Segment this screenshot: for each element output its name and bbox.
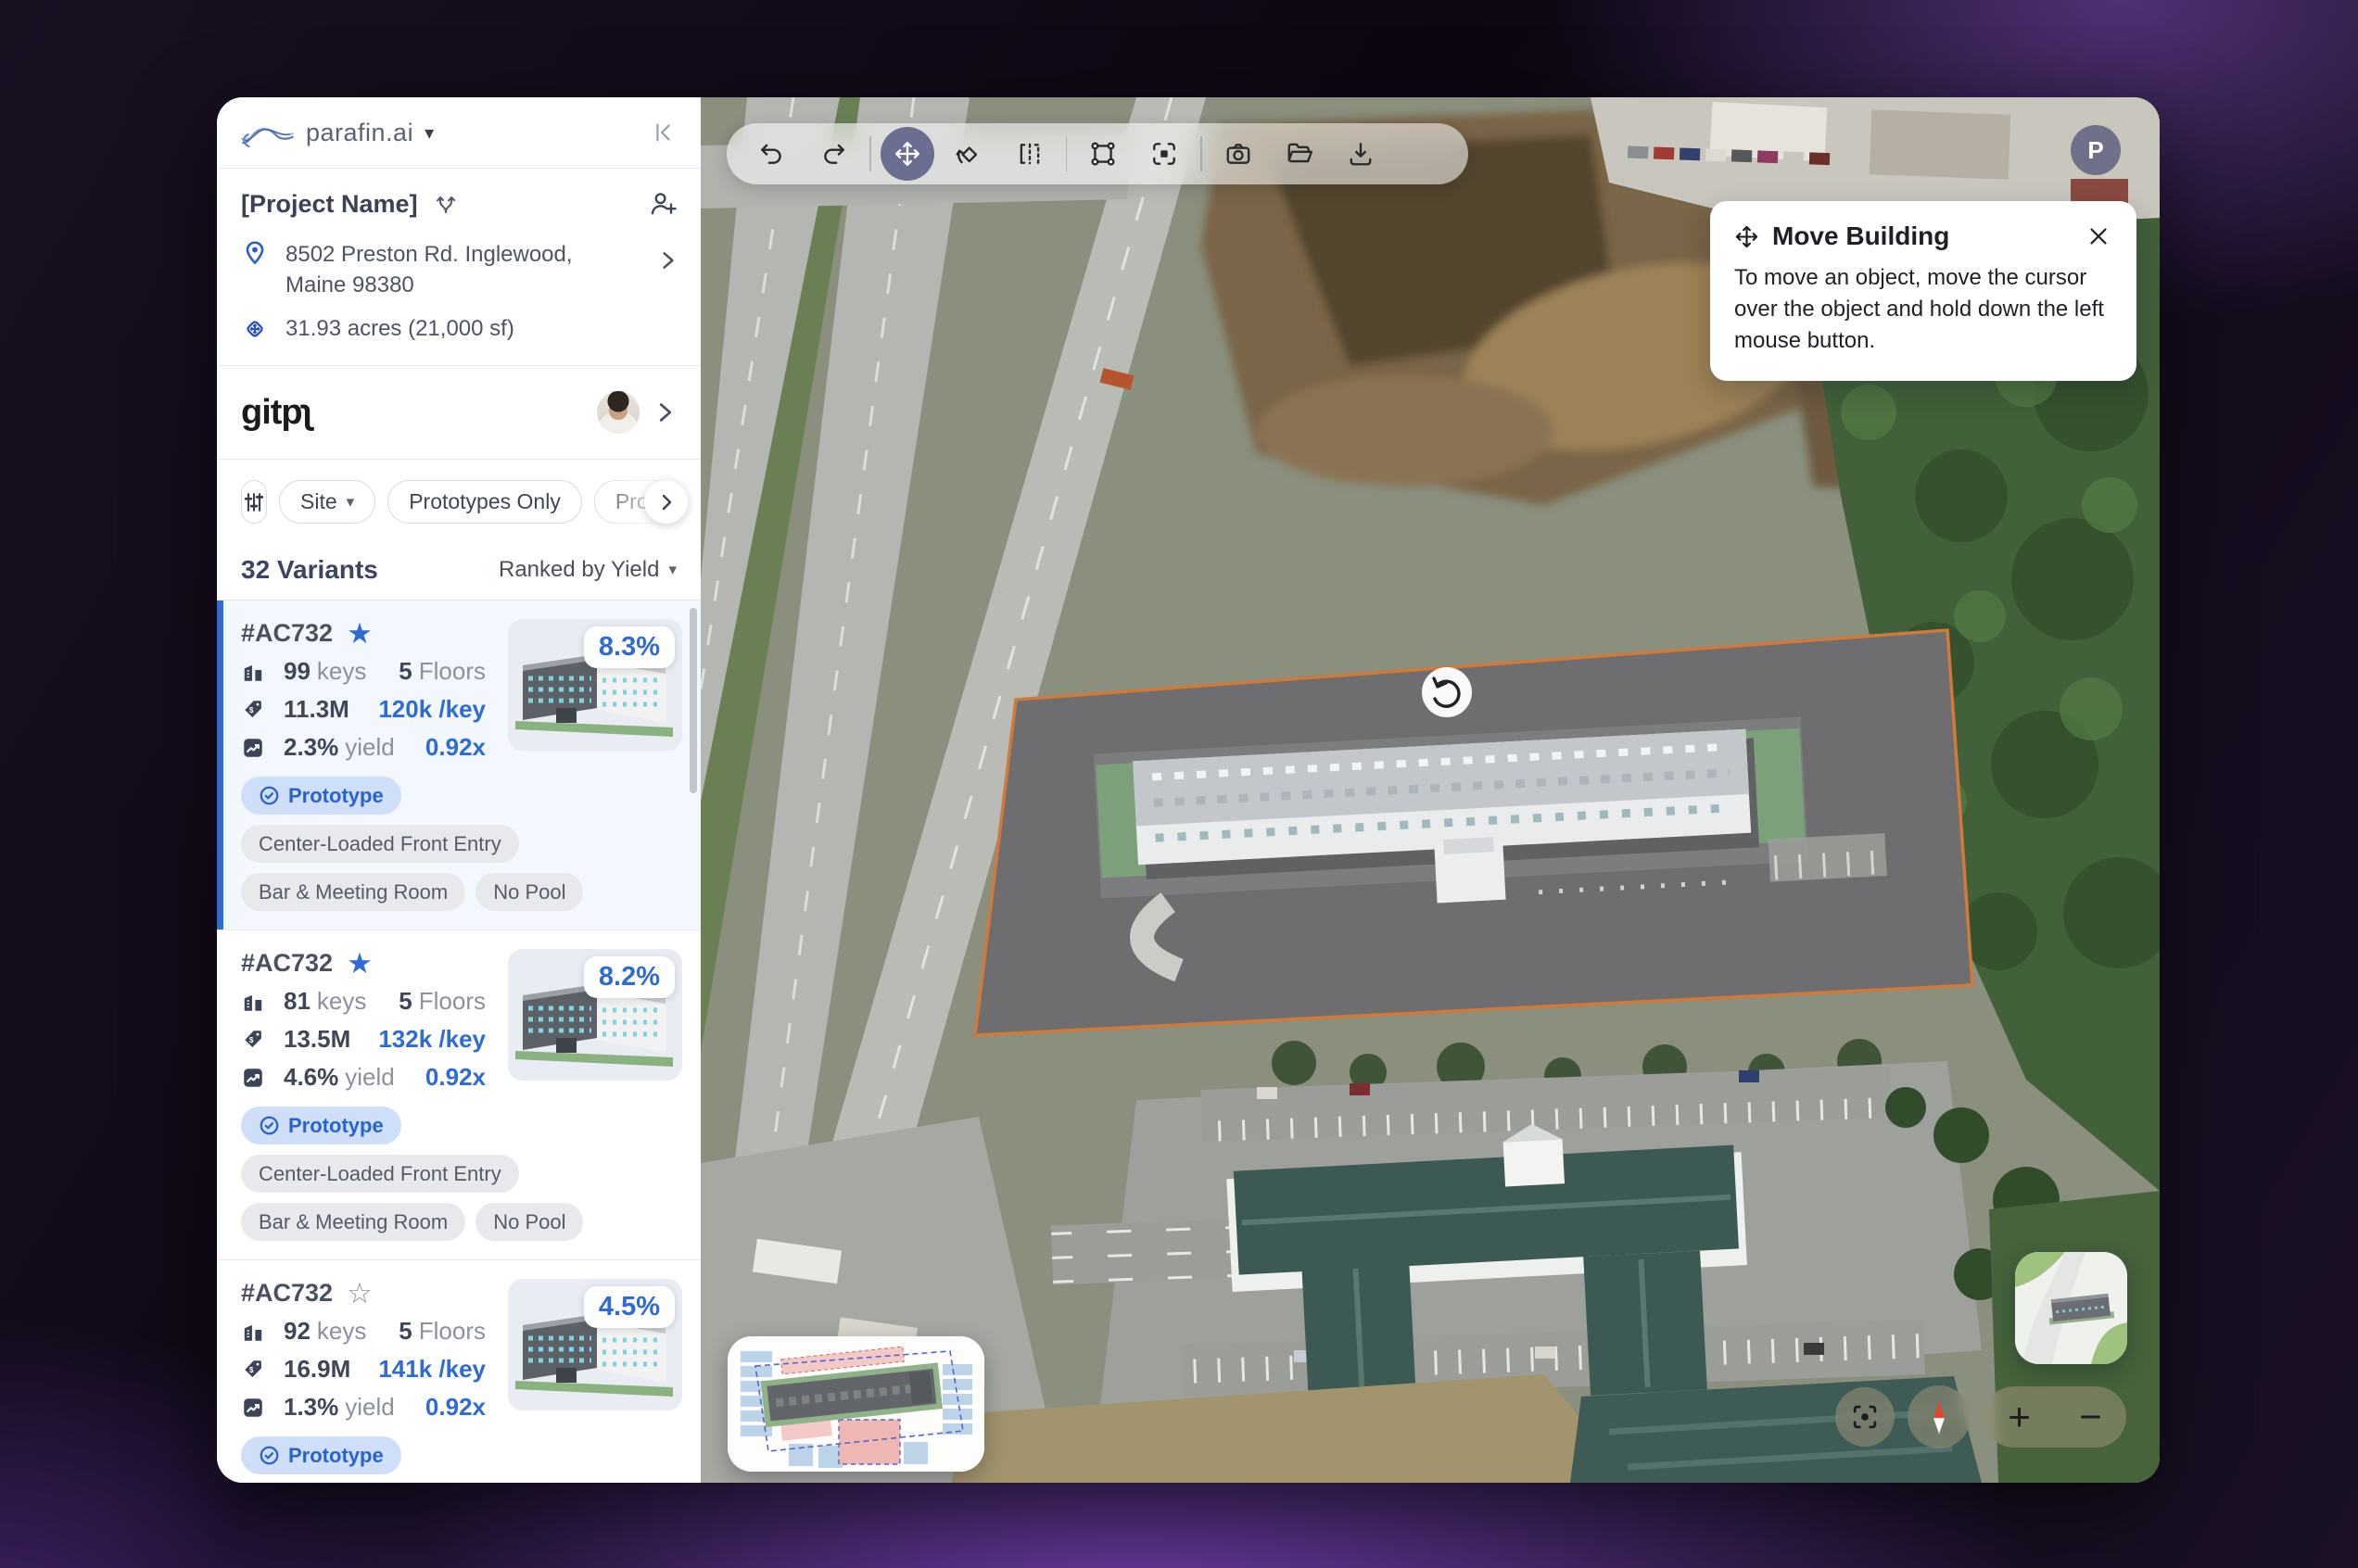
variant-tag: No Pool xyxy=(475,873,583,911)
yield-value: 1.3% xyxy=(284,1393,338,1421)
folder-icon xyxy=(1286,140,1313,168)
rotate-handle[interactable] xyxy=(1422,667,1472,717)
toolbar-divider xyxy=(869,136,871,171)
sidebar-collapse-button[interactable] xyxy=(647,117,678,148)
variant-thumbnail[interactable]: 8.2% xyxy=(508,949,682,1081)
toolbar-divider xyxy=(1066,136,1068,171)
yield-value: 2.3% xyxy=(284,733,338,761)
filter-scroll-right-button[interactable] xyxy=(644,480,688,524)
move-icon xyxy=(894,140,921,168)
price-tag-icon: $ xyxy=(241,1028,265,1052)
location-pin-icon xyxy=(241,239,269,267)
prototype-tag: Prototype xyxy=(241,1106,401,1144)
keys-icon xyxy=(241,660,265,684)
yield-unit: yield xyxy=(345,1063,394,1091)
price-tag-icon: $ xyxy=(241,1358,265,1382)
sidebar-scrollbar[interactable] xyxy=(690,608,697,793)
floors-value: 5 xyxy=(399,1317,412,1345)
tooltip-body: To move an object, move the cursor over … xyxy=(1734,262,2112,357)
partner-logo: gitpʅ xyxy=(241,393,312,433)
multiple-value: 0.92x xyxy=(425,1393,502,1422)
view-preview-widget[interactable] xyxy=(2015,1252,2127,1364)
partner-avatar xyxy=(597,391,640,434)
variant-tag: Bar & Meeting Room xyxy=(241,873,465,911)
variant-card[interactable]: #AC732 ☆ 92keys 5Floors xyxy=(217,1260,701,1483)
transform-tool-button[interactable] xyxy=(1072,123,1134,184)
brand-header: parafin.ai ▾ xyxy=(217,97,701,168)
project-address: 8502 Preston Rd. Inglewood, Maine 98380 xyxy=(285,239,591,300)
chevron-right-icon[interactable] xyxy=(658,250,678,271)
rotate-tool-button[interactable] xyxy=(938,123,999,184)
svg-text:$: $ xyxy=(249,706,254,714)
toolbar-divider xyxy=(1200,136,1202,171)
project-area: 31.93 acres (21,000 sf) xyxy=(285,316,514,342)
building-model[interactable] xyxy=(975,630,1972,1035)
variant-tags: PrototypeCenter-Loaded Front EntryBar & … xyxy=(241,1436,682,1483)
move-building-tooltip: Move Building To move an object, move th… xyxy=(1710,201,2136,381)
partner-section[interactable]: gitpʅ xyxy=(217,366,701,459)
variant-id: #AC732 xyxy=(241,619,333,648)
yield-icon xyxy=(241,736,265,760)
per-key-value: 141k /key xyxy=(378,1355,502,1384)
camera-icon xyxy=(1224,140,1252,168)
collapse-icon xyxy=(651,120,675,145)
project-section: [Project Name] 8502 Preston Rd. Inglewoo… xyxy=(217,169,701,365)
floors-unit: Floors xyxy=(419,987,486,1015)
add-collaborator-icon[interactable] xyxy=(649,189,678,219)
recenter-icon xyxy=(1850,1402,1880,1432)
brand-name: parafin.ai xyxy=(306,119,413,147)
map-viewport[interactable]: Move Building To move an object, move th… xyxy=(701,97,2160,1483)
keys-value: 81 xyxy=(284,987,311,1015)
favorite-star-icon[interactable]: ★ xyxy=(347,949,373,978)
area-row: 31.93 acres (21,000 sf) xyxy=(241,315,678,343)
yield-badge: 4.5% xyxy=(584,1286,675,1328)
floors-value: 5 xyxy=(399,987,412,1015)
variant-id: #AC732 xyxy=(241,949,333,978)
tooltip-close-button[interactable] xyxy=(2085,222,2112,250)
compass-needle-icon xyxy=(1919,1397,1959,1437)
project-name: [Project Name] xyxy=(241,190,418,219)
brand-dropdown-caret[interactable]: ▾ xyxy=(425,121,434,145)
yield-icon xyxy=(241,1066,265,1090)
per-key-value: 120k /key xyxy=(378,695,502,724)
variant-thumbnail[interactable]: 4.5% xyxy=(508,1279,682,1410)
keys-unit: keys xyxy=(317,657,366,685)
keys-icon xyxy=(241,990,265,1014)
sidebar: parafin.ai ▾ [Project Name] xyxy=(217,97,701,1483)
price-tag-icon: $ xyxy=(241,698,265,722)
verified-icon xyxy=(259,785,280,806)
mirror-icon xyxy=(1016,140,1044,168)
verified-icon xyxy=(259,1115,280,1136)
yield-badge: 8.2% xyxy=(584,956,675,998)
filter-site-dropdown[interactable]: Site ▾ xyxy=(279,480,375,524)
variant-card[interactable]: #AC732 ★ 99keys 5Floors xyxy=(217,601,701,930)
keys-icon xyxy=(241,1320,265,1344)
verified-icon xyxy=(259,1445,280,1466)
variant-tag: Center-Loaded Front Entry xyxy=(241,825,519,863)
screenshot-button[interactable] xyxy=(1208,123,1269,184)
focus-icon xyxy=(1150,140,1178,168)
prototype-tag: Prototype xyxy=(241,1436,401,1474)
focus-selection-button[interactable] xyxy=(1134,123,1195,184)
svg-text:$: $ xyxy=(249,1036,254,1044)
caret-down-icon: ▾ xyxy=(668,561,677,579)
view-preview xyxy=(2015,1252,2127,1364)
tooltip-title: Move Building xyxy=(1772,221,1949,251)
chevron-right-icon xyxy=(657,493,676,512)
favorite-star-icon[interactable]: ★ xyxy=(347,619,373,648)
variant-id: #AC732 xyxy=(241,1279,333,1308)
variant-tags: PrototypeCenter-Loaded Front EntryBar & … xyxy=(241,777,682,911)
parafin-logo-icon xyxy=(237,113,297,152)
sort-dropdown[interactable]: Ranked by Yield ▾ xyxy=(499,557,677,583)
yield-unit: yield xyxy=(345,1393,394,1421)
variant-thumbnail[interactable]: 8.3% xyxy=(508,619,682,751)
yield-value: 4.6% xyxy=(284,1063,338,1091)
open-files-button[interactable] xyxy=(1269,123,1330,184)
redo-button[interactable] xyxy=(803,123,864,184)
caret-down-icon: ▾ xyxy=(347,493,355,512)
compass[interactable] xyxy=(1908,1385,1971,1448)
per-key-value: 132k /key xyxy=(378,1025,502,1054)
variants-header: 32 Variants Ranked by Yield ▾ xyxy=(217,542,701,600)
filter-prototypes-button[interactable]: Prototypes Only xyxy=(387,480,582,524)
site-area-icon xyxy=(241,315,269,343)
sliders-icon xyxy=(242,490,266,514)
user-avatar[interactable]: P xyxy=(2071,125,2121,175)
variants-count: 32 Variants xyxy=(241,555,378,585)
yield-badge: 8.3% xyxy=(584,626,675,668)
variant-tag: No Pool xyxy=(475,1203,583,1241)
yield-unit: yield xyxy=(345,733,394,761)
move-icon xyxy=(1734,224,1759,249)
site-plan-minimap[interactable] xyxy=(728,1336,984,1472)
zoom-in-button[interactable]: + xyxy=(1984,1386,2055,1448)
move-tool-button[interactable] xyxy=(881,127,934,181)
mirror-tool-button[interactable] xyxy=(999,123,1060,184)
keys-unit: keys xyxy=(317,1317,366,1345)
svg-text:$: $ xyxy=(249,1366,254,1374)
variant-tag: Bar & Meeting Room xyxy=(241,1203,465,1241)
redo-icon xyxy=(819,140,847,168)
zoom-out-button[interactable]: − xyxy=(2055,1386,2126,1448)
price-value: 11.3M xyxy=(284,695,349,723)
filter-bar: Site ▾ Prototypes Only Progra xyxy=(217,460,701,542)
keys-value: 92 xyxy=(284,1317,311,1345)
branch-icon[interactable] xyxy=(433,191,459,217)
undo-button[interactable] xyxy=(742,123,803,184)
undo-icon xyxy=(758,140,786,168)
floors-unit: Floors xyxy=(419,1317,486,1345)
app-window: parafin.ai ▾ [Project Name] xyxy=(217,97,2160,1483)
filter-settings-button[interactable] xyxy=(241,480,267,524)
chevron-right-icon[interactable] xyxy=(654,401,677,424)
download-icon xyxy=(1347,140,1375,168)
download-button[interactable] xyxy=(1330,123,1391,184)
variant-card[interactable]: #AC732 ★ 81keys 5Floors xyxy=(217,930,701,1260)
keys-value: 99 xyxy=(284,657,311,685)
price-value: 16.9M xyxy=(284,1355,350,1383)
site-plan xyxy=(728,1336,984,1472)
multiple-value: 0.92x xyxy=(425,1063,502,1092)
variant-tag: Center-Loaded Front Entry xyxy=(241,1155,519,1193)
map-toolbar xyxy=(727,123,1468,184)
transform-icon xyxy=(1089,140,1117,168)
keys-unit: keys xyxy=(317,987,366,1015)
zoom-controls: + − xyxy=(1984,1386,2126,1448)
floors-unit: Floors xyxy=(419,657,486,685)
multiple-value: 0.92x xyxy=(425,733,502,762)
variant-list: #AC732 ★ 99keys 5Floors xyxy=(217,600,701,1483)
floors-value: 5 xyxy=(399,657,412,685)
favorite-star-icon[interactable]: ☆ xyxy=(347,1279,373,1308)
price-value: 13.5M xyxy=(284,1025,350,1053)
recenter-button[interactable] xyxy=(1835,1387,1895,1447)
address-row[interactable]: 8502 Preston Rd. Inglewood, Maine 98380 xyxy=(241,239,678,300)
prototype-tag: Prototype xyxy=(241,777,401,815)
close-icon xyxy=(2086,224,2111,248)
rotate-icon xyxy=(955,140,982,168)
sort-label: Ranked by Yield xyxy=(499,557,659,583)
filter-site-label: Site xyxy=(300,489,337,514)
filter-prototypes-label: Prototypes Only xyxy=(409,489,561,514)
variant-tags: PrototypeCenter-Loaded Front EntryBar & … xyxy=(241,1106,682,1241)
yield-icon xyxy=(241,1396,265,1420)
